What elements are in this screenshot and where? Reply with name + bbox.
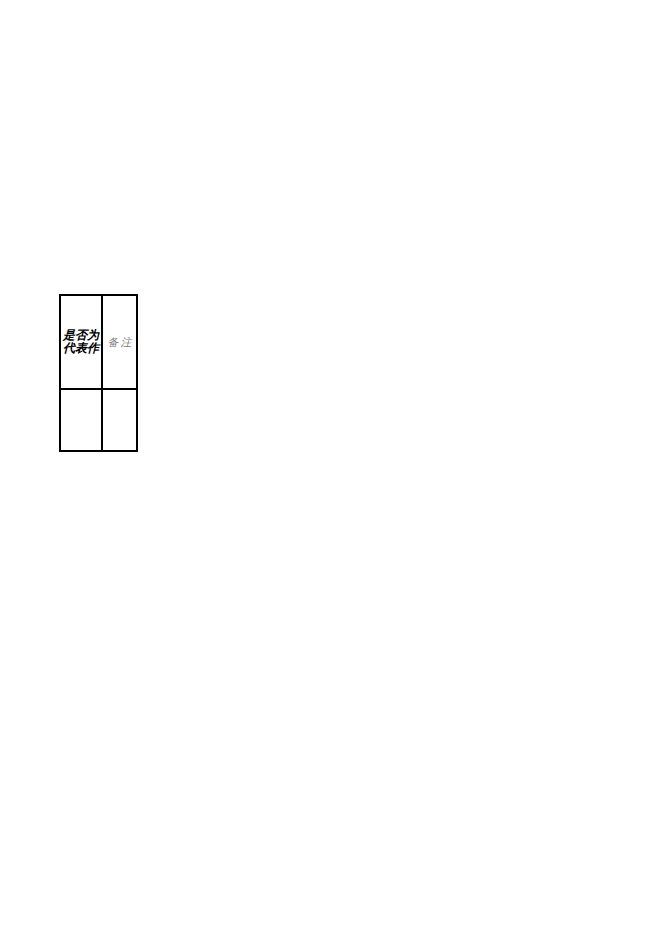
body-cell-remarks[interactable]: [103, 390, 136, 450]
representative-works-table: 是否为 代表作 备注: [59, 294, 138, 452]
header-label-is-representative-line2: 代表作: [63, 342, 99, 355]
document-page: 是否为 代表作 备注: [0, 0, 662, 936]
header-cell-is-representative[interactable]: 是否为 代表作: [61, 296, 103, 390]
header-cell-remarks[interactable]: 备注: [103, 296, 136, 390]
header-label-remarks: 备注: [106, 335, 134, 350]
body-cell-is-representative[interactable]: [61, 390, 103, 450]
